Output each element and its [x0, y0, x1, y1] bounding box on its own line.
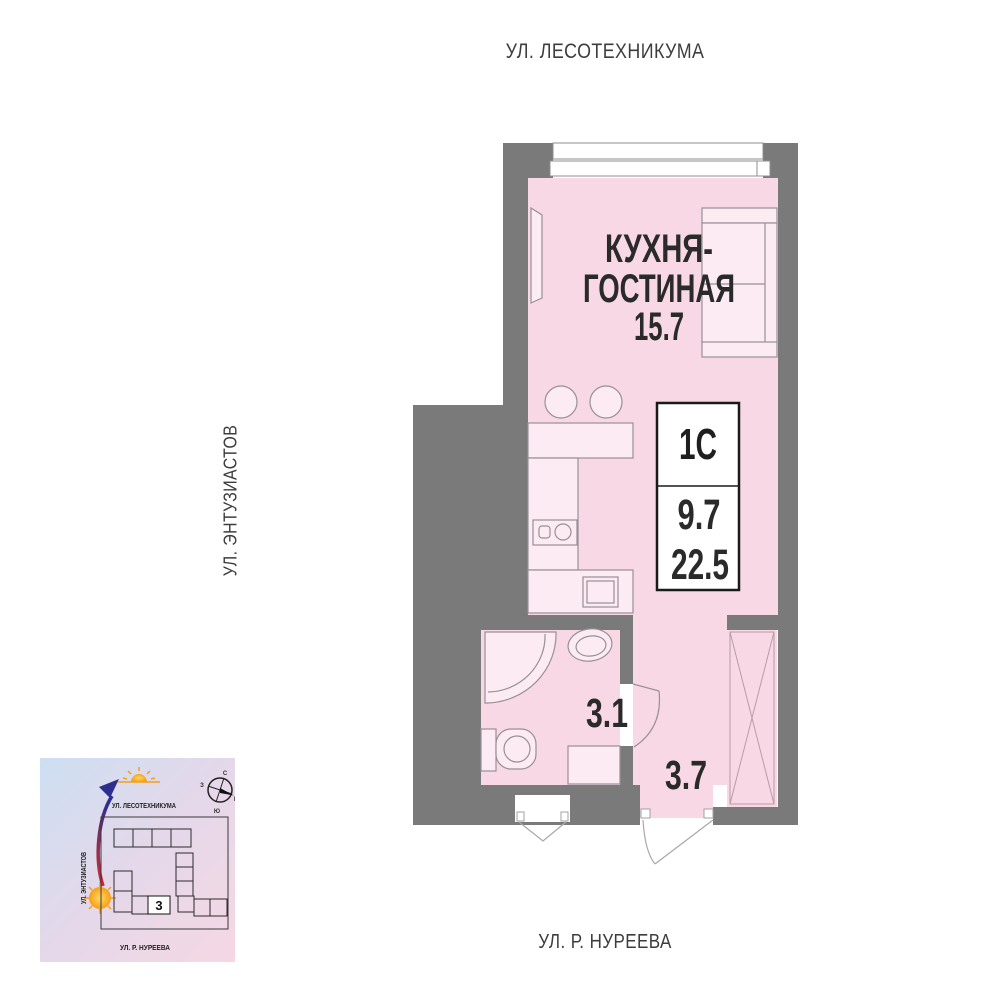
sofa-top	[702, 208, 777, 223]
minimap-street-top: УЛ. ЛЕСОТЕХНИКУМА	[112, 801, 176, 810]
niche-jamb	[561, 812, 568, 821]
wall	[503, 143, 553, 178]
washing-machine	[568, 746, 620, 784]
wall	[713, 807, 798, 825]
room-title-line1: КУХНЯ-	[605, 227, 713, 271]
compass-north-label: С	[223, 771, 228, 777]
toilet-tank	[481, 729, 496, 771]
compass-south-label: Ю	[214, 809, 220, 815]
compass-east-label: В	[234, 797, 235, 803]
info-card: 1C 9.7 22.5	[657, 403, 739, 590]
sink-basin-round	[555, 524, 571, 540]
toilet-seat	[504, 736, 530, 762]
wall	[413, 405, 528, 615]
kitchen-counter-side	[528, 458, 578, 570]
wall	[620, 746, 633, 785]
kitchen-sink	[533, 520, 577, 545]
tv-unit	[531, 208, 542, 303]
window-top	[550, 143, 770, 176]
stool	[590, 386, 622, 418]
window-band	[550, 161, 770, 176]
wall	[413, 615, 481, 825]
compass-west-label: З	[200, 783, 204, 789]
minimap-street-bottom: УЛ. Р. НУРЕЕВА	[120, 943, 171, 952]
niche-jamb	[517, 812, 524, 821]
toilet	[481, 729, 536, 771]
sink-basin-small	[539, 526, 550, 538]
shaft-niche	[515, 795, 570, 841]
bathroom-area-label: 3.1	[586, 690, 628, 736]
entrance-jamb	[704, 809, 713, 818]
layout-type-label: 1C	[679, 420, 717, 469]
room-area-label: 15.7	[634, 305, 684, 349]
kitchen-counter-top	[528, 423, 633, 458]
entrance-door-leaf	[655, 820, 713, 864]
location-minimap: С Ю З В 3 УЛ. ЛЕСОТЕХНИК	[40, 758, 235, 962]
wall	[727, 615, 778, 630]
minimap-street-left: УЛ. ЭНТУЗИАСТОВ	[79, 852, 88, 904]
balcony-slab	[553, 143, 763, 159]
wall	[778, 143, 798, 825]
entrance-jamb	[641, 809, 650, 818]
wall	[481, 615, 633, 630]
stove-inner	[587, 581, 614, 603]
minimap-background	[40, 758, 235, 962]
sofa-bottom	[702, 342, 777, 357]
sun-body	[89, 887, 111, 909]
building-number-label: 3	[155, 898, 162, 913]
living-area-label: 9.7	[678, 491, 721, 539]
stool	[545, 386, 577, 418]
wall	[620, 630, 633, 684]
hallway-area-label: 3.7	[665, 752, 707, 798]
entrance-door-arc	[643, 820, 655, 864]
wall	[503, 178, 528, 406]
total-area-label: 22.5	[671, 541, 729, 589]
